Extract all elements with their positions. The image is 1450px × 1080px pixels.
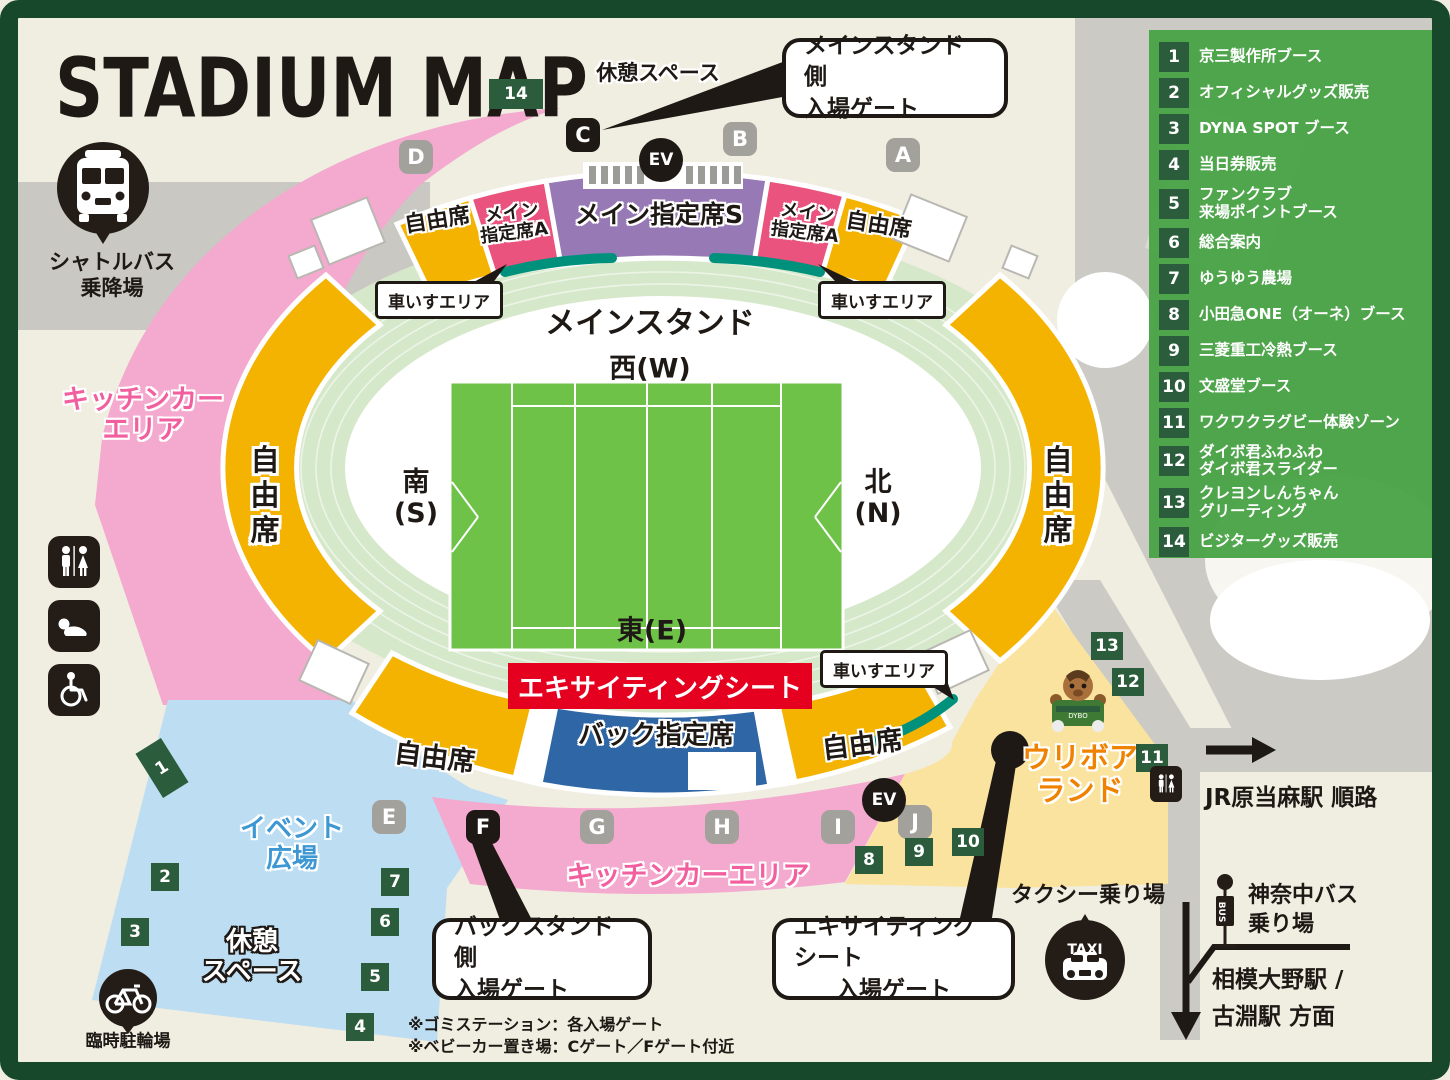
wheelchair-box-top-left: 車いすエリア [375,281,503,319]
marker-3: 3 [121,918,149,946]
marker-8: 8 [855,846,883,874]
legend-item-5: 5ファンクラブ来場ポイントブース [1159,186,1422,222]
gate-e: E [372,800,406,834]
bike-parking-label: 臨時駐輪場 [86,1027,171,1052]
svg-text:BUS: BUS [1216,902,1226,923]
legend-item-2: 2オフィシャルグッズ販売 [1159,78,1422,108]
map-notes: ※ゴミステーション：各入場ゲート ※ベビーカー置き場：Cゲート／Fゲート付近 [408,1014,734,1059]
uriboa-land-label: ウリボア ランド [1022,742,1138,809]
legend-item-6: 6総合案内 [1159,228,1422,258]
seat-label-main-a-right: メイン 指定席A [770,199,842,247]
elevator-main: EV [639,138,683,182]
back-stand-notch [688,752,756,790]
callout-back-gate: バックスタンド側 入場ゲート [432,918,652,1000]
toilet-icon [48,536,100,588]
callout-main-gate: メインスタンド側 入場ゲート [782,38,1008,118]
legend-item-14: 14ビジターグッズ販売 [1159,527,1422,557]
rest-space-top-label: 休憩スペース [596,57,719,87]
marker-13: 13 [1091,632,1123,660]
marker-5: 5 [361,963,389,991]
legend-item-7: 7ゆうゆう農場 [1159,264,1422,294]
marker-14: 14 [489,79,543,109]
legend-item-9: 9三菱重工冷熱ブース [1159,336,1422,366]
direction-south: 南 (S) [394,467,438,529]
rest-space-south-label: 休憩 スペース [202,928,303,988]
legend-item-12: 12ダイボ君ふわふわダイボ君スライダー [1159,444,1422,480]
callout-exciting-gate: エキサイティングシート 入場ゲート [772,918,1015,1000]
nursing-room-icon [48,600,100,652]
seat-label-free-east: 自由席 [1035,445,1077,550]
legend-item-4: 4当日券販売 [1159,150,1422,180]
gate-i: I [821,810,855,844]
direction-east: 東(E) [617,609,687,648]
wheelchair-box-bottom-right: 車いすエリア [820,650,948,688]
marker-7: 7 [381,868,409,896]
legend-item-11: 11ワクワクラグビー体験ゾーン [1159,408,1422,438]
marker-4: 4 [346,1013,374,1041]
marker-12: 12 [1112,668,1144,696]
toilet-icon-small [1150,766,1182,802]
taxi-stand-label: タクシー乗り場 [1011,877,1165,909]
jr-route-label: JR原当麻駅 順路 [1205,778,1377,812]
direction-west: 西(W) [609,347,690,386]
seat-label-back-reserved: バック指定席 [578,715,734,752]
legend-item-10: 10文盛堂ブース [1159,372,1422,402]
sagami-direction-label: 相模大野駅 / 古淵駅 方面 [1212,962,1343,1036]
seat-label-main-s: メイン指定席S [575,195,743,231]
gate-a: A [886,138,920,172]
seat-label-free-west: 自由席 [242,445,284,550]
shuttle-bus-icon [55,140,151,250]
legend-item-13: 13クレヨンしんちゃんグリーティング [1159,485,1422,521]
marker-2: 2 [151,863,179,891]
gate-c: C [566,118,600,152]
stadium-map-page: { "title": "STADIUM MAP", "legend": { "i… [0,0,1450,1080]
legend-panel: 1京三製作所ブース 2オフィシャルグッズ販売 3DYNA SPOT ブース 4当… [1149,30,1432,558]
wheelchair-box-top-right: 車いすエリア [818,281,946,319]
taxi-icon: TAXI [1045,912,1125,1002]
bus-stop-icon: BUS [1208,874,1242,952]
kitchen-area-south-label: キッチンカーエリア [567,854,810,893]
elevator-back: EV [862,778,906,822]
bus-stop-label: 神奈中バス 乗り場 [1248,882,1358,939]
building-blob-2 [1210,560,1430,680]
gate-d: D [399,140,433,174]
kitchen-area-west-label: キッチンカー エリア [62,385,224,444]
gate-b: B [723,122,757,156]
wheelchair-icon [48,664,100,716]
main-stand-label: メインスタンド [545,298,754,342]
legend-item-1: 1京三製作所ブース [1159,42,1422,72]
marker-9: 9 [905,838,933,866]
legend-item-3: 3DYNA SPOT ブース [1159,114,1422,144]
marker-6: 6 [371,908,399,936]
gate-f: F [466,810,500,844]
shuttle-bus-label: シャトルバス 乗降場 [49,249,175,302]
seat-label-main-a-left: メイン 指定席A [477,199,549,247]
legend-item-8: 8小田急ONE（オーネ）ブース [1159,300,1422,330]
mascot-uriboa: DYBO [1042,660,1114,736]
direction-north: 北 (N) [854,467,901,529]
svg-text:DYBO: DYBO [1068,712,1088,720]
gate-h: H [705,810,739,844]
exciting-seat-banner: エキサイティングシート [508,663,812,709]
gate-g: G [580,810,614,844]
event-plaza-label: イベント 広場 [240,815,344,875]
marker-10: 10 [952,828,984,856]
